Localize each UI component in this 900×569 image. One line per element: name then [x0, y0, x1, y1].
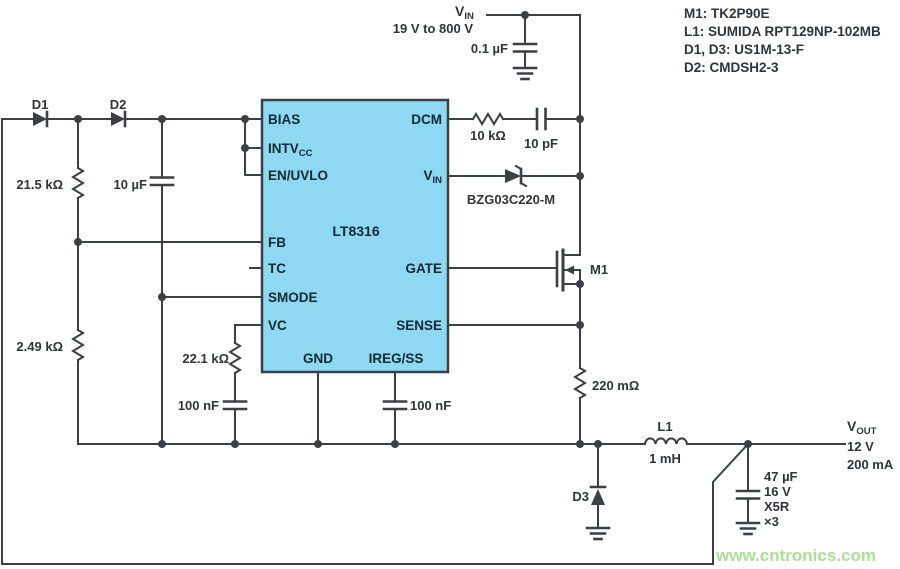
label-vin: VIN — [455, 3, 474, 22]
capacitor-47uf — [737, 491, 759, 499]
label-c-ss: 100 nF — [410, 398, 451, 413]
pin-label-bias: BIAS — [268, 112, 300, 127]
pin-label-dcm: DCM — [411, 112, 442, 127]
d3-triangle — [591, 489, 605, 505]
note-d2: D2: CMDSH2-3 — [684, 60, 779, 75]
pin-label-gnd: GND — [303, 351, 333, 366]
resistor-21k5 — [73, 168, 83, 198]
label-r-vc: 22.1 kΩ — [182, 351, 229, 366]
ground-symbol-input — [514, 68, 536, 79]
label-vout-current: 200 mA — [847, 457, 894, 472]
junction-dot — [314, 440, 322, 448]
junction-dot — [576, 280, 584, 288]
watermark: www.cntronics.com — [715, 546, 876, 565]
resistor-220m — [575, 368, 585, 398]
vc-wires — [235, 325, 262, 444]
capacitor-100nf-ss — [384, 402, 406, 410]
m1-body-arrow — [565, 266, 574, 275]
pin-label-gate: GATE — [406, 261, 443, 276]
label-d2: D2 — [110, 97, 127, 112]
resistor-22k1 — [230, 343, 240, 373]
label-c-vc: 100 nF — [178, 398, 219, 413]
inductor-l1 — [645, 438, 687, 444]
junction-dot — [158, 115, 166, 123]
junction-dot — [576, 172, 584, 180]
junction-dot — [74, 115, 82, 123]
pin-label-fb: FB — [268, 235, 286, 250]
junction-dot — [74, 238, 82, 246]
pin-label-en-uvlo: EN/UVLO — [268, 168, 328, 183]
label-d1: D1 — [32, 97, 49, 112]
resistor-10k — [473, 114, 503, 124]
junction-dot — [576, 115, 584, 123]
zener-triangle — [505, 169, 521, 183]
circuit-schematic: LT8316 BIAS INTVCC EN/UVLO FB TC SMODE V… — [0, 0, 900, 569]
ground-symbol-output — [737, 523, 759, 534]
zener-wing-bottom — [521, 183, 526, 186]
note-m1: M1: TK2P90E — [684, 6, 770, 21]
ground-symbol-d3 — [587, 528, 609, 539]
label-l1-value: 1 mH — [649, 451, 681, 466]
label-vout: VOUT — [847, 418, 877, 437]
d2-triangle — [111, 112, 125, 126]
schematic-page: LT8316 BIAS INTVCC EN/UVLO FB TC SMODE V… — [0, 0, 900, 569]
capacitor-10uf — [151, 178, 173, 186]
label-c-in: 0.1 µF — [471, 41, 508, 56]
capacitor-10pf — [537, 109, 546, 129]
pin-label-tc: TC — [268, 261, 286, 276]
label-c-out-qty: ×3 — [764, 514, 779, 529]
junction-dot — [391, 440, 399, 448]
junction-dot — [576, 321, 584, 329]
label-r-top: 21.5 kΩ — [16, 177, 63, 192]
component-labels: D1 D2 21.5 kΩ 10 µF 2.49 kΩ 22.1 kΩ 100 … — [16, 3, 893, 529]
label-vin-range: 19 V to 800 V — [393, 21, 474, 36]
pin-label-sense: SENSE — [396, 318, 442, 333]
label-r-dcm: 10 kΩ — [470, 128, 506, 143]
junction-dot — [241, 144, 249, 152]
label-d3: D3 — [572, 489, 589, 504]
junction-dot — [241, 115, 249, 123]
junction-dot — [744, 440, 752, 448]
ic-part-number: LT8316 — [332, 223, 379, 239]
junction-dot — [521, 11, 529, 19]
pin-label-smode: SMODE — [268, 290, 318, 305]
label-zener: BZG03C220-M — [467, 192, 555, 207]
d1-triangle — [33, 112, 47, 126]
label-r-bottom: 2.49 kΩ — [16, 339, 63, 354]
note-l1: L1: SUMIDA RPT129NP-102MB — [684, 24, 881, 39]
label-c-dcm: 10 pF — [524, 136, 558, 151]
label-vout-voltage: 12 V — [847, 439, 874, 454]
label-r-sense: 220 mΩ — [592, 378, 639, 393]
label-c-out-value: 47 µF — [764, 469, 798, 484]
junction-dot — [231, 440, 239, 448]
label-c-out-rating: 16 V — [764, 484, 791, 499]
diode-d2 — [111, 112, 125, 126]
resistor-2k49 — [73, 330, 83, 360]
pin-label-vc: VC — [268, 318, 287, 333]
label-c-out-dielectric: X5R — [764, 499, 790, 514]
label-c-bias: 10 µF — [113, 177, 147, 192]
label-l1: L1 — [657, 419, 672, 434]
ic-lt8316: LT8316 BIAS INTVCC EN/UVLO FB TC SMODE V… — [262, 100, 448, 372]
junction-dot — [158, 293, 166, 301]
zener-wing-top — [516, 166, 521, 169]
label-m1: M1 — [590, 262, 608, 277]
note-d1-d3: D1, D3: US1M-13-F — [684, 42, 804, 57]
junction-dot — [594, 440, 602, 448]
capacitor-0u1 — [514, 44, 536, 52]
diode-d3 — [591, 487, 605, 505]
pin-label-ireg-ss: IREG/SS — [369, 351, 424, 366]
diode-d1 — [33, 112, 47, 126]
junction-dot — [576, 440, 584, 448]
junction-dot — [158, 440, 166, 448]
part-notes: M1: TK2P90E L1: SUMIDA RPT129NP-102MB D1… — [684, 6, 881, 75]
capacitor-100nf-vc — [224, 402, 246, 410]
